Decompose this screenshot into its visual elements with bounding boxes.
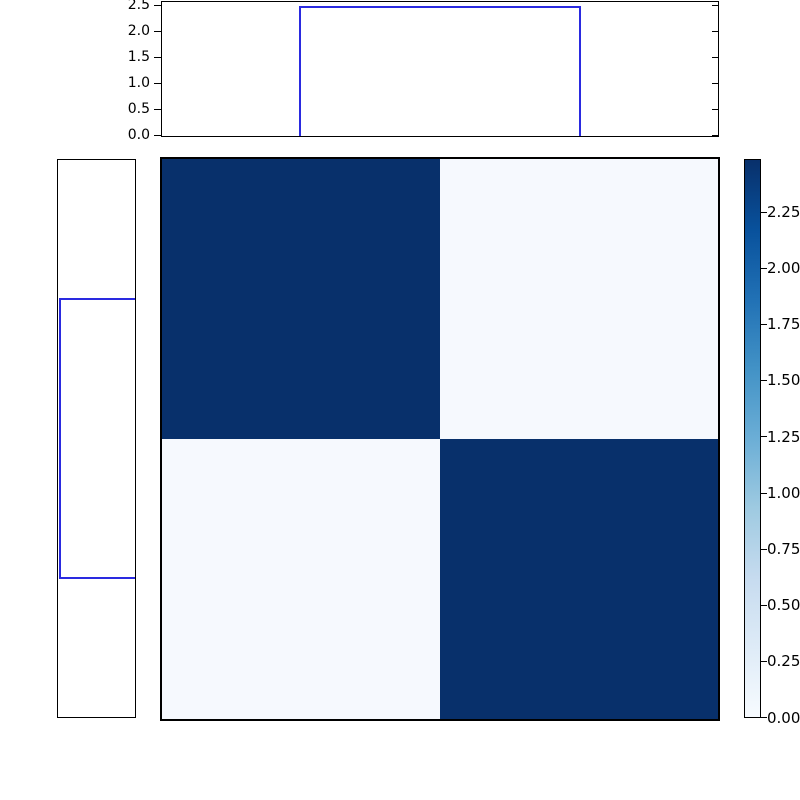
ytick-mark xyxy=(154,57,161,58)
top-histogram-plot-area xyxy=(162,2,718,136)
left-marginal-axes xyxy=(57,159,136,718)
heatmap-cell-bottom-left xyxy=(162,439,440,719)
colorbar-tick-label: 0.00 xyxy=(767,709,800,727)
heatmap xyxy=(160,157,720,721)
ytick-mark xyxy=(712,135,719,136)
colorbar-tick-label: 0.25 xyxy=(767,652,800,670)
ytick-label: 2.0 xyxy=(100,23,150,39)
ytick-mark xyxy=(154,135,161,136)
colorbar-tick-mark xyxy=(760,324,767,325)
top-marginal-axes xyxy=(161,1,719,137)
heatmap-cell-top-right xyxy=(440,159,718,439)
ytick-mark xyxy=(712,57,719,58)
left-histogram-step-line xyxy=(60,299,135,578)
colorbar-tick-label: 2.00 xyxy=(767,259,800,277)
top-histogram-step-line xyxy=(300,7,580,136)
ytick-mark xyxy=(154,83,161,84)
ytick-mark xyxy=(154,5,161,6)
colorbar-tick-label: 1.25 xyxy=(767,428,800,446)
colorbar-tick-label: 0.50 xyxy=(767,596,800,614)
ytick-mark xyxy=(154,31,161,32)
colorbar xyxy=(744,159,761,718)
ytick-mark xyxy=(712,5,719,6)
colorbar-tick-mark xyxy=(760,493,767,494)
colorbar-tick-label: 1.75 xyxy=(767,315,800,333)
colorbar-tick-mark xyxy=(760,212,767,213)
ytick-label: 2.5 xyxy=(100,0,150,13)
colorbar-tick-mark xyxy=(760,549,767,550)
colorbar-tick-mark xyxy=(760,717,767,718)
ytick-mark xyxy=(154,109,161,110)
colorbar-tick-label: 2.25 xyxy=(767,203,800,221)
colorbar-tick-mark xyxy=(760,380,767,381)
colorbar-tick-mark xyxy=(760,661,767,662)
heatmap-cell-top-left xyxy=(162,159,440,439)
joint-histogram-figure: 2.5 2.0 1.5 1.0 0.5 0.0 2.25 2.00 1.75 1… xyxy=(0,0,800,800)
ytick-label: 1.0 xyxy=(100,75,150,91)
colorbar-tick-mark xyxy=(760,268,767,269)
left-histogram-plot-area xyxy=(58,160,135,717)
colorbar-tick-label: 1.00 xyxy=(767,484,800,502)
colorbar-tick-label: 0.75 xyxy=(767,540,800,558)
ytick-mark xyxy=(712,83,719,84)
colorbar-tick-label: 1.50 xyxy=(767,371,800,389)
heatmap-cell-bottom-right xyxy=(440,439,718,719)
ytick-label: 0.0 xyxy=(100,127,150,143)
colorbar-tick-mark xyxy=(760,605,767,606)
ytick-label: 1.5 xyxy=(100,49,150,65)
ytick-mark xyxy=(712,31,719,32)
ytick-label: 0.5 xyxy=(100,101,150,117)
colorbar-tick-mark xyxy=(760,436,767,437)
ytick-mark xyxy=(712,109,719,110)
